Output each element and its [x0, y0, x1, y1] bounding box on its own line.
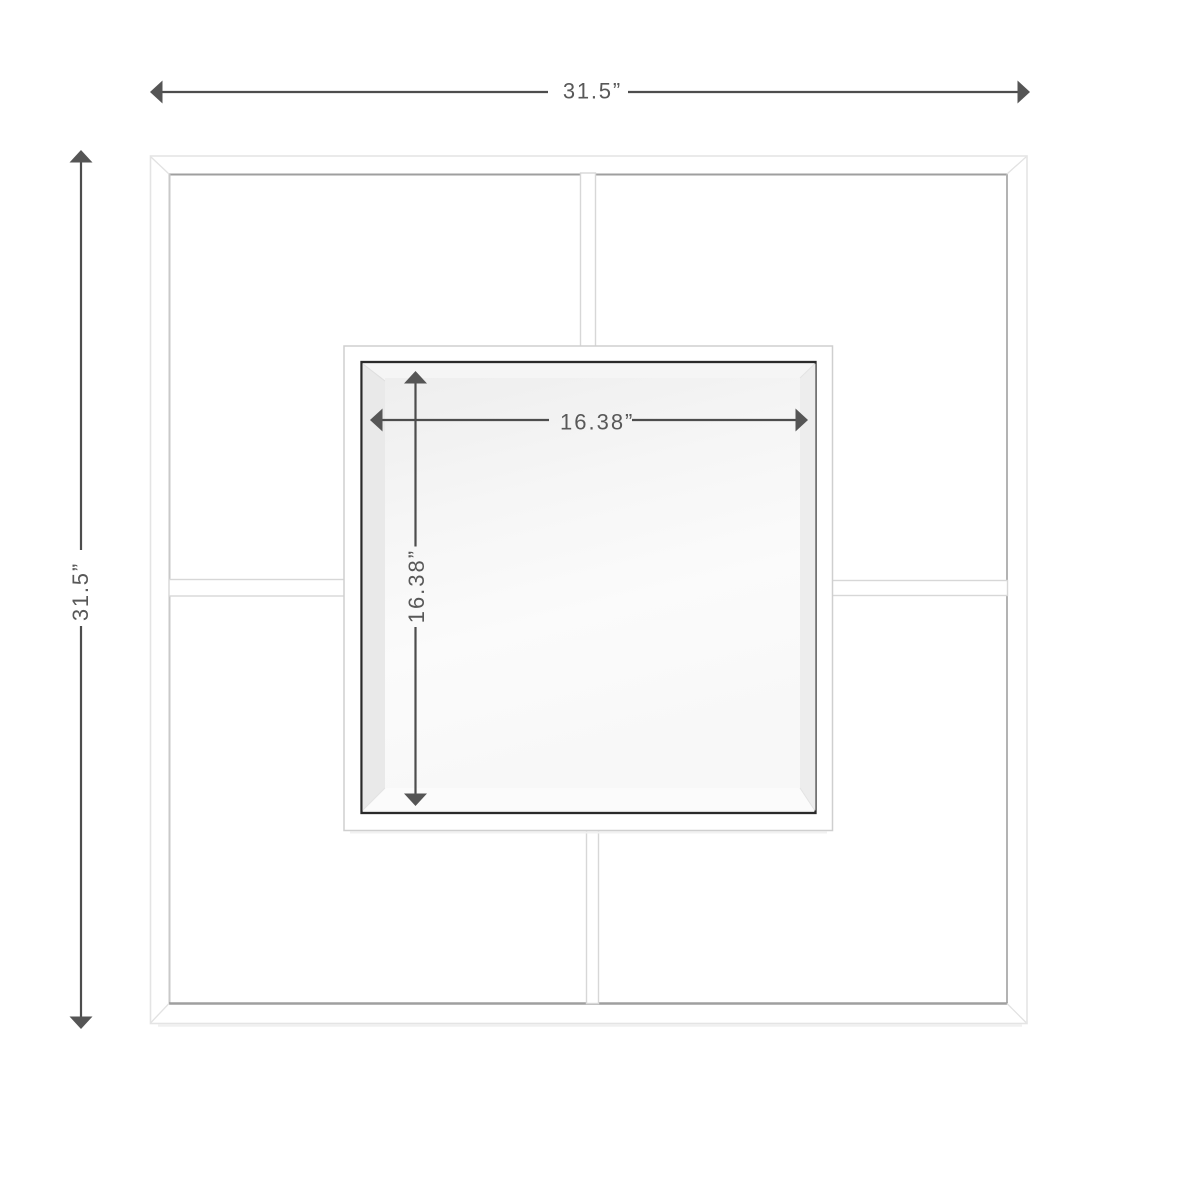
svg-text:16.38”: 16.38” — [560, 409, 634, 434]
svg-text:16.38”: 16.38” — [404, 549, 429, 623]
svg-text:31.5”: 31.5” — [68, 562, 93, 621]
svg-text:31.5”: 31.5” — [563, 78, 622, 103]
